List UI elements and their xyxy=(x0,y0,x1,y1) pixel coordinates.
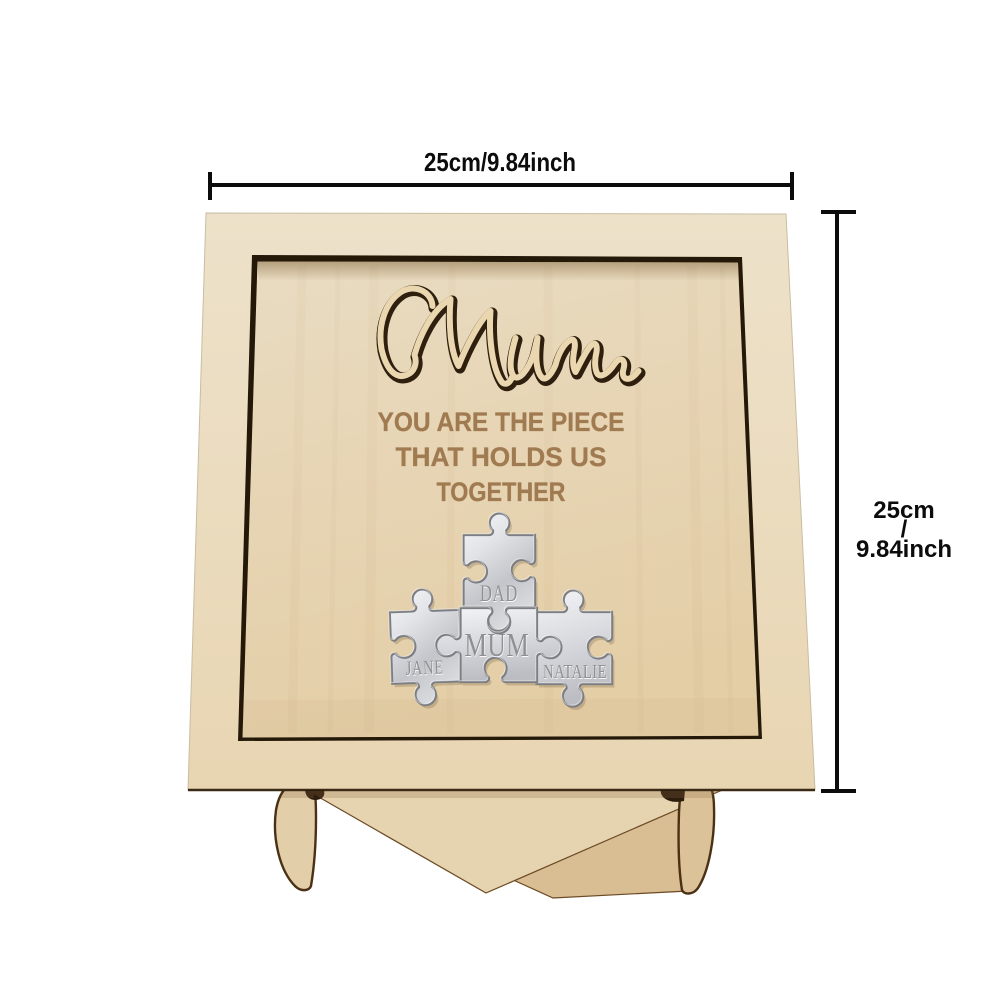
svg-text:TOGETHER: TOGETHER xyxy=(437,477,566,507)
svg-text:JANE: JANE xyxy=(405,656,444,679)
svg-text:9.84inch: 9.84inch xyxy=(856,536,952,563)
svg-text:NATALIE: NATALIE xyxy=(543,661,607,683)
svg-text:YOU ARE THE PIECE: YOU ARE THE PIECE xyxy=(378,407,625,437)
svg-text:25cm/9.84inch: 25cm/9.84inch xyxy=(424,147,576,177)
svg-text:DAD: DAD xyxy=(480,581,518,606)
svg-text:MUM: MUM xyxy=(465,627,530,664)
svg-text:THAT HOLDS US: THAT HOLDS US xyxy=(396,442,607,472)
